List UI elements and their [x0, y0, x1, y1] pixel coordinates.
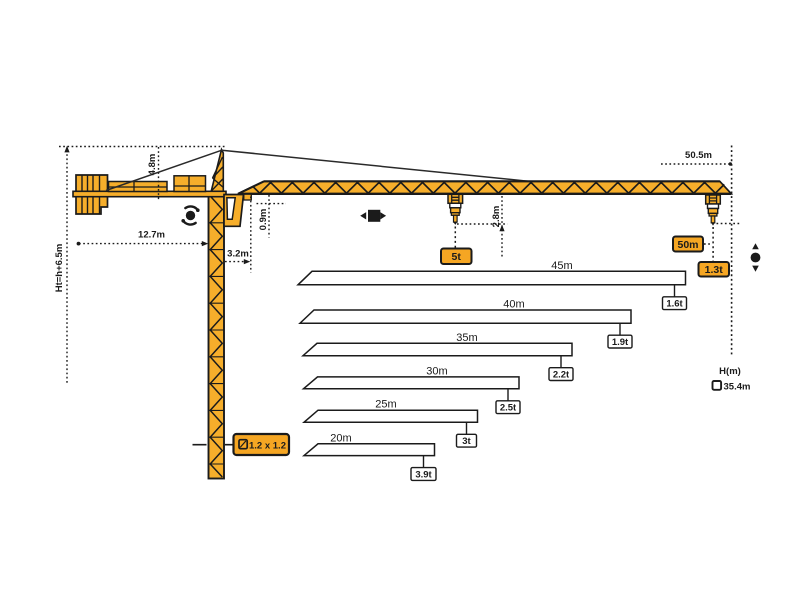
- svg-text:50m: 50m: [677, 239, 698, 251]
- svg-text:1.9t: 1.9t: [612, 337, 629, 348]
- svg-text:5t: 5t: [452, 251, 462, 263]
- svg-text:45m: 45m: [551, 260, 572, 272]
- svg-text:30m: 30m: [426, 365, 447, 377]
- svg-text:H(m): H(m): [719, 366, 741, 377]
- svg-text:4.8m: 4.8m: [147, 154, 158, 176]
- svg-text:0.9m: 0.9m: [258, 209, 269, 231]
- svg-text:1.2 x 1.2: 1.2 x 1.2: [249, 440, 286, 451]
- svg-text:3t: 3t: [462, 436, 471, 447]
- svg-text:40m: 40m: [503, 299, 524, 311]
- svg-text:3.2m: 3.2m: [227, 249, 249, 260]
- svg-text:1.3t: 1.3t: [705, 264, 724, 276]
- svg-text:35m: 35m: [456, 332, 477, 344]
- svg-text:2.5t: 2.5t: [500, 403, 517, 414]
- svg-text:1.6t: 1.6t: [666, 299, 683, 310]
- svg-text:2.2t: 2.2t: [553, 369, 570, 380]
- svg-text:2.8m: 2.8m: [491, 206, 502, 228]
- svg-text:25m: 25m: [375, 399, 396, 411]
- svg-text:35.4m: 35.4m: [724, 382, 751, 393]
- svg-text:Ht=h+6.5m: Ht=h+6.5m: [54, 244, 65, 293]
- svg-text:20m: 20m: [330, 432, 351, 444]
- svg-text:12.7m: 12.7m: [138, 230, 165, 241]
- svg-text:3.9t: 3.9t: [415, 469, 432, 480]
- svg-text:50.5m: 50.5m: [685, 150, 712, 161]
